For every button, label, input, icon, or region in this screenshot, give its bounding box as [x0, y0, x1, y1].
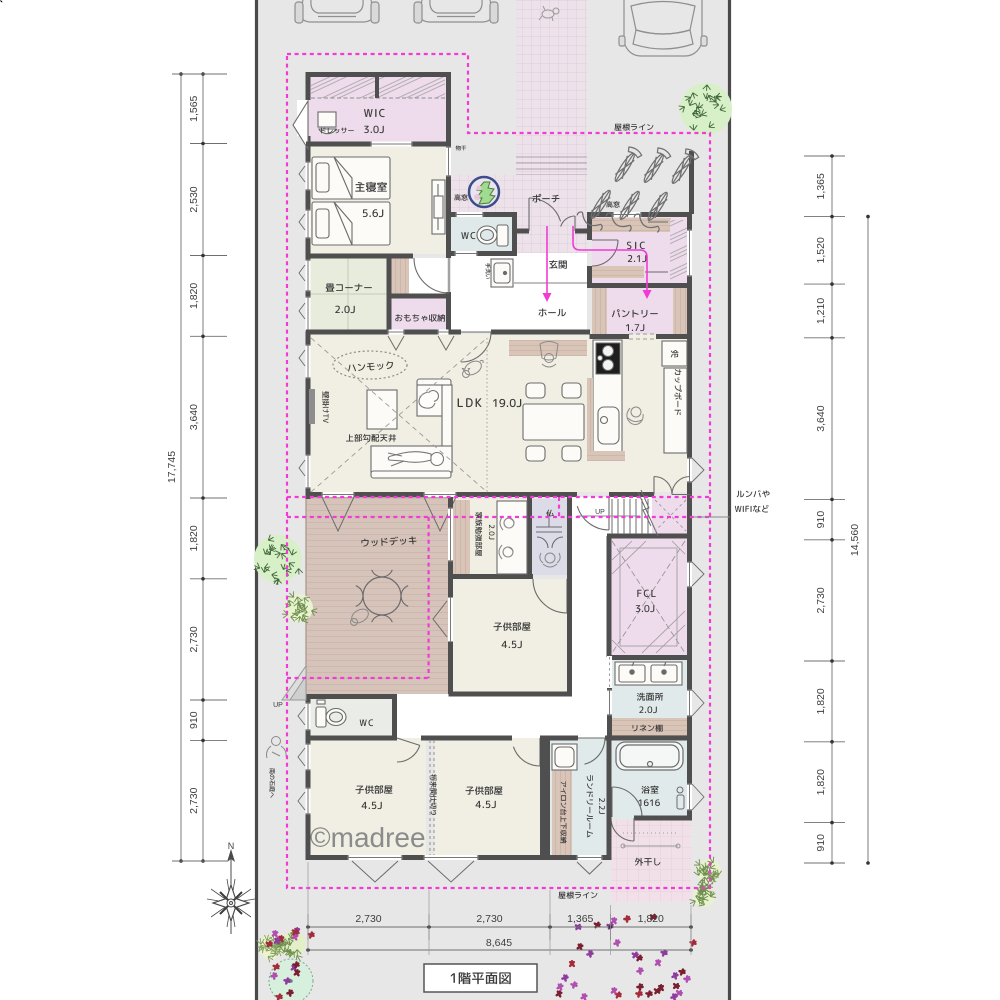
svg-text:おもちゃ収納: おもちゃ収納 [394, 312, 446, 324]
svg-text:子供部屋: 子供部屋 [465, 785, 504, 798]
svg-text:2.1J: 2.1J [627, 253, 647, 266]
svg-text:1616: 1616 [638, 796, 661, 809]
svg-text:家族勉強部屋: 家族勉強部屋 [473, 512, 483, 557]
svg-text:2.2J: 2.2J [596, 798, 608, 815]
svg-text:ルンバや: ルンバや [736, 488, 771, 500]
svg-text:リネン棚: リネン棚 [631, 722, 663, 734]
svg-text:2,730: 2,730 [355, 913, 381, 925]
svg-text:1,565: 1,565 [188, 95, 200, 121]
svg-text:南の石庭へ: 南の石庭へ [268, 768, 276, 798]
svg-text:手洗い: 手洗い [484, 263, 492, 280]
svg-text:17,745: 17,745 [166, 451, 178, 483]
svg-text:玄関: 玄関 [548, 259, 568, 272]
svg-text:1,820: 1,820 [815, 688, 827, 714]
svg-text:畳コーナー: 畳コーナー [325, 282, 373, 295]
svg-text:3,640: 3,640 [815, 405, 827, 431]
svg-text:3.0J: 3.0J [635, 603, 655, 616]
svg-text:子供部屋: 子供部屋 [493, 621, 532, 634]
svg-text:ホール: ホール [538, 307, 567, 320]
svg-text:N: N [228, 841, 235, 851]
svg-text:WC: WC [359, 716, 374, 729]
svg-text:910: 910 [188, 711, 200, 729]
svg-text:LDK: LDK [457, 394, 484, 411]
svg-text:2,730: 2,730 [188, 626, 200, 652]
svg-text:1,820: 1,820 [815, 769, 827, 795]
svg-text:1.7J: 1.7J [625, 322, 645, 335]
svg-text:1階平面図: 1階平面図 [449, 969, 512, 988]
svg-text:WIFIなど: WIFIなど [735, 503, 770, 515]
svg-text:子供部屋: 子供部屋 [355, 784, 394, 797]
svg-text:2,530: 2,530 [188, 186, 200, 212]
svg-text:2,730: 2,730 [188, 787, 200, 813]
svg-text:2,730: 2,730 [815, 587, 827, 613]
svg-text:高窓: 高窓 [454, 193, 468, 203]
svg-text:1,365: 1,365 [815, 173, 827, 199]
svg-text:4.5J: 4.5J [361, 799, 382, 813]
svg-text:ポーチ: ポーチ [532, 193, 561, 206]
svg-text:910: 910 [815, 834, 827, 852]
svg-text:8,645: 8,645 [486, 937, 512, 949]
svg-text:©madree: ©madree [310, 822, 426, 853]
svg-text:物干: 物干 [455, 144, 467, 152]
svg-text:浴室: 浴室 [641, 783, 659, 796]
svg-text:1,520: 1,520 [815, 237, 827, 263]
svg-text:FCL: FCL [637, 587, 658, 601]
svg-text:1,365: 1,365 [567, 913, 593, 925]
svg-text:1,820: 1,820 [188, 525, 200, 551]
svg-text:上部勾配天井: 上部勾配天井 [345, 432, 397, 444]
svg-text:アイロン台上下収納: アイロン台上下収納 [558, 781, 568, 844]
svg-text:SIC: SIC [626, 239, 647, 253]
svg-text:2.0J: 2.0J [638, 703, 657, 716]
svg-text:WIC: WIC [363, 105, 386, 121]
svg-text:2.0J: 2.0J [334, 303, 355, 317]
svg-text:パントリー: パントリー [611, 308, 659, 321]
svg-text:1,820: 1,820 [188, 283, 200, 309]
svg-text:4.5J: 4.5J [475, 798, 496, 812]
svg-text:3,640: 3,640 [188, 404, 200, 430]
svg-text:910: 910 [815, 511, 827, 529]
svg-text:5.6J: 5.6J [362, 207, 385, 221]
svg-text:UP: UP [273, 702, 283, 709]
svg-text:1,210: 1,210 [815, 298, 827, 324]
svg-text:WC: WC [461, 230, 477, 243]
svg-text:屋根ライン: 屋根ライン [558, 889, 598, 901]
svg-text:外干し: 外干し [634, 855, 661, 868]
svg-text:2.0J: 2.0J [486, 524, 496, 540]
svg-text:将来間仕切り: 将来間仕切り [428, 774, 438, 816]
svg-text:14,560: 14,560 [849, 524, 861, 556]
svg-text:屋根ライン: 屋根ライン [614, 121, 654, 133]
svg-text:2,730: 2,730 [476, 913, 502, 925]
svg-text:ランドリールーム: ランドリールーム [584, 774, 596, 838]
svg-text:3.0J: 3.0J [363, 123, 384, 137]
svg-text:壁掛けTV: 壁掛けTV [320, 391, 330, 424]
svg-text:19.0J: 19.0J [492, 395, 522, 411]
svg-text:UP: UP [595, 509, 605, 516]
svg-text:4.5J: 4.5J [501, 638, 522, 652]
svg-text:カップボード: カップボード [672, 368, 684, 416]
svg-text:冷: 冷 [670, 348, 679, 360]
svg-text:1,820: 1,820 [638, 913, 664, 925]
svg-text:洗面所: 洗面所 [636, 690, 663, 703]
svg-text:主寝室: 主寝室 [355, 179, 388, 195]
svg-text:高窓: 高窓 [606, 200, 620, 210]
svg-text:ドレッサー: ドレッサー [320, 126, 355, 136]
